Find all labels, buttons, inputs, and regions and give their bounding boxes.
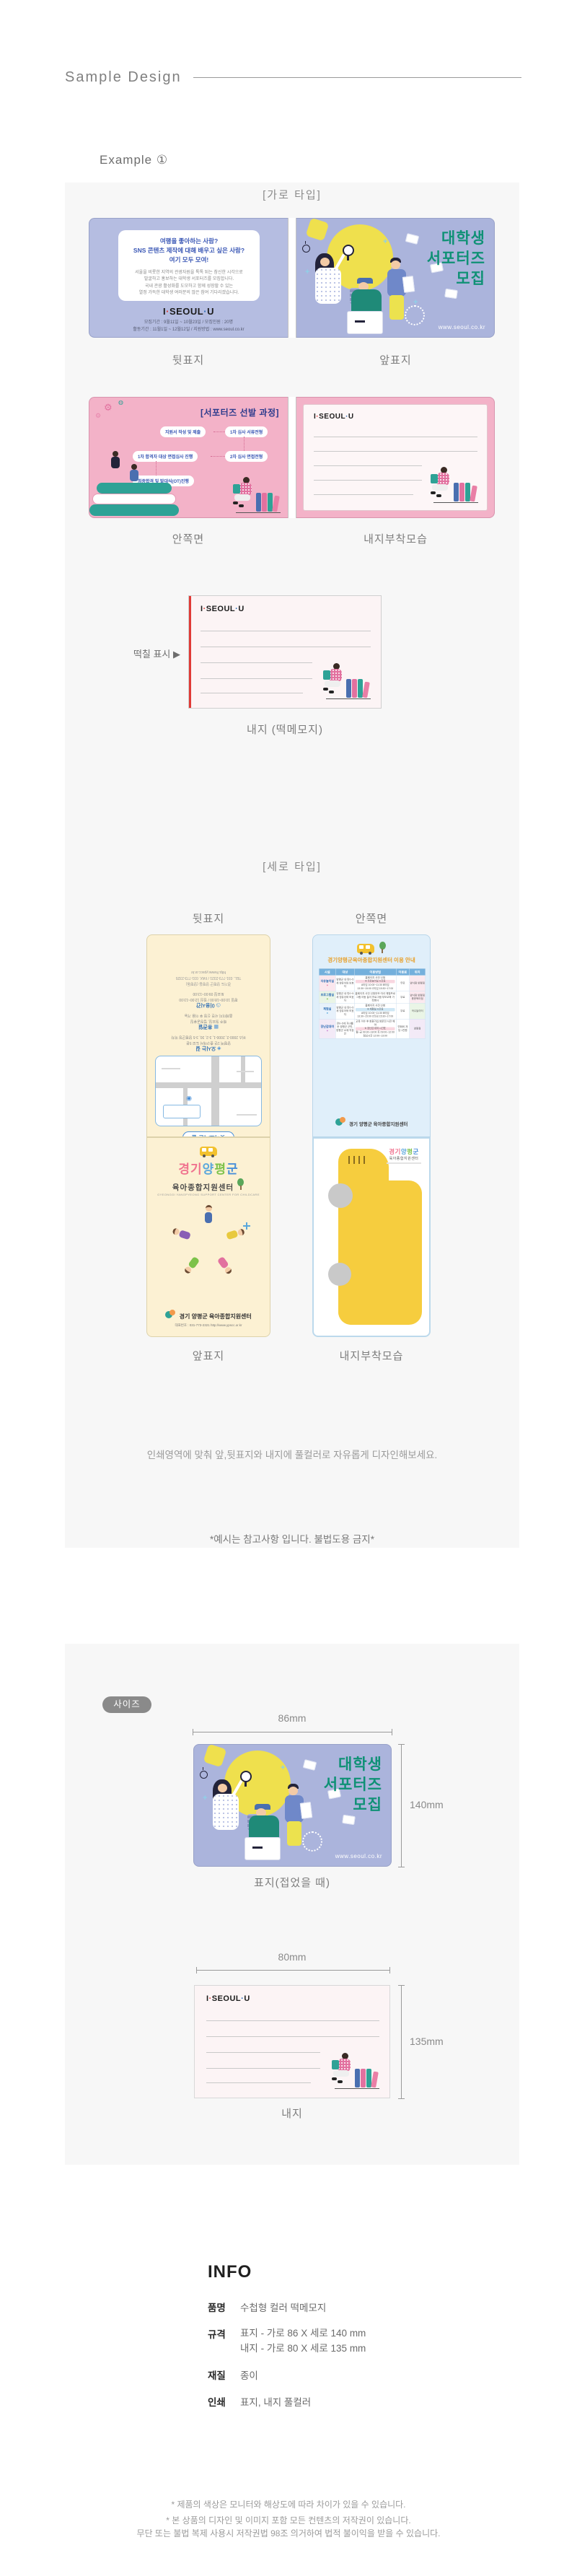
footer-note: 무단 또는 불법 복제 사용시 저작권법 98조 의거하여 법적 불이익을 받을…: [0, 2527, 577, 2539]
page: Sample Design Example ① [가로 타입] 여행을 좋아하는…: [0, 0, 577, 2576]
bus-icon: [357, 944, 374, 953]
caption-v-back: 뒷표지: [146, 911, 270, 926]
caption-cover-folded: 표지(접었을 때): [65, 1875, 519, 1890]
front-title: 대학생 서포터즈 모집: [427, 229, 485, 289]
memo-line: [314, 451, 477, 452]
inner-width-dim: 80mm: [65, 1951, 519, 1963]
mini-person: [130, 464, 138, 481]
measure-line: [196, 1970, 390, 1971]
flow-connector: [213, 431, 225, 432]
caption-memo: 내지 (떡메모지): [188, 722, 382, 737]
memo-line: [201, 678, 312, 679]
back-heading-line: 여기 모두 모여!: [118, 255, 260, 265]
front-cover-card: + + + 대학생 서포터즈 모집 www.seoul.co.kr: [296, 218, 495, 338]
guide-section: ◷ 이용시간 평일 10:00~18:00 / 점심 12:00~13:00 토…: [147, 991, 270, 1009]
calendar-icon: ▦: [213, 1024, 219, 1029]
guide-section: ▦ 휴관일 매주 월요일, 법정공휴일 홈페이지 사전 신청 후 이용 가능: [147, 1012, 270, 1030]
horizontal-type-label: [가로 타입]: [65, 187, 519, 202]
vent-dashes: [348, 1156, 350, 1164]
yangpyeong-subtitle-en: GYEONGGI YANGPYEONG SUPPORT CENTER FOR C…: [147, 1193, 270, 1196]
v-back-cover-card: 찾아오시는 길 ◉ ◈ 오시는 길 양평역 1번 출구에서 도보 5분 버스 2…: [146, 934, 270, 1137]
book-stack: [97, 483, 172, 494]
flow-connector: [211, 456, 225, 457]
v-front-cover-card: 경기양평군 육아종합지원센터 GYEONGGI YANGPYEONG SUPPO…: [146, 1137, 270, 1337]
rotated-back-content: 찾아오시는 길 ◉ ◈ 오시는 길 양평역 1번 출구에서 도보 5분 버스 2…: [147, 944, 270, 1137]
fold-line: [288, 397, 296, 518]
title-divider: [193, 77, 521, 78]
usage-title: 경기양평군육아종합지원센터 이용 안내: [313, 956, 430, 964]
memo-line: [201, 693, 303, 693]
usage-row: 장난감대여● 만0~5세 자녀를 둔 양평군 군민, 양평군 소재 직장인 교육…: [319, 1019, 426, 1038]
yangpyeong-mini-logo: 경기양평군 육아종합지원센터: [384, 1147, 423, 1164]
attached-card: I·SEOUL·U: [296, 397, 495, 518]
magnifier-icon: [240, 1771, 252, 1782]
gear-icon: ⚙: [95, 412, 101, 420]
caption-inside: 안쪽면: [89, 531, 288, 546]
flow-connector: [156, 461, 157, 476]
caption-attached: 내지부착모습: [296, 531, 495, 546]
fold-line: [288, 218, 296, 338]
glue-edge-mark: [189, 596, 191, 708]
caption-back-cover: 뒷표지: [89, 352, 288, 367]
play-icon: ●: [327, 983, 328, 987]
info-label: 품명: [208, 2300, 226, 2314]
design-note: 인쇄영역에 맞춰 앞,뒷표지와 내지에 풀컬러로 자유롭게 디자인해보세요.: [65, 1447, 519, 1461]
reading-person-illustration: [232, 476, 283, 516]
memo-line: [201, 631, 371, 631]
memo-line: [201, 647, 371, 647]
yangpyeong-logo-block: 경기 양평군 육아종합지원센터: [313, 1116, 430, 1129]
map-title-pill: 찾아오시는 길: [182, 1131, 234, 1137]
wheel-shape: [328, 1263, 351, 1286]
memo-line: [314, 494, 413, 495]
info-value: 종이: [240, 2367, 258, 2382]
laptop-shape: [347, 311, 383, 334]
usage-row: 프로그램실● 양평군 내 만0~5세 영유아와 보호자 홈페이지 사전 신청부모…: [319, 991, 426, 1004]
inside-spread: ⚙ ⚙ ◍ [서포터즈 선발 과정] 지원서 작성 및 제출 1차 심사 서류전…: [89, 397, 495, 518]
magnifier-icon: [343, 245, 354, 256]
iseoulu-logo: I·SEOUL·U: [206, 1994, 250, 2003]
memo-line: [314, 480, 422, 481]
memo-sheet: I·SEOUL·U: [303, 404, 488, 511]
reading-person-illustration: [429, 465, 481, 506]
center-logo-icon: [165, 1310, 176, 1320]
gear-icon: ⚙: [104, 402, 113, 413]
info-value: 표지 - 가로 86 X 세로 140 mm 내지 - 가로 80 X 세로 1…: [240, 2326, 366, 2357]
cover-height-dim: 140mm: [410, 1799, 444, 1810]
recruit-meta-line: 모집기간 : 9월11일 ~ 10월23일 / 모집인원 : 20명: [89, 319, 288, 326]
caption-v-attached: 내지부착모습: [312, 1348, 431, 1363]
back-body-line: 국내 관광 활성화를 도모하고 함께 성장할 수 있는: [118, 284, 260, 291]
caption-front-cover: 앞표지: [296, 352, 495, 367]
info-value: 표지, 내지 풀컬러: [240, 2394, 311, 2409]
paper-shape: [444, 289, 458, 299]
caption-v-inside: 안쪽면: [312, 911, 431, 926]
back-body-line: 열정 가득한 대학생 여러분의 많은 참여 기다리겠습니다.: [118, 290, 260, 297]
puzzle-shape: [306, 218, 330, 241]
plus-accent: +: [383, 237, 387, 246]
tree-icon: [237, 1178, 245, 1190]
paper-shape: [405, 233, 419, 245]
logo-contact: 대표번호 : 031-773-2321 http://www.ypscc.or.…: [147, 1323, 270, 1328]
cover-width-dim: 86mm: [65, 1712, 519, 1724]
size-memo-card: I·SEOUL·U: [194, 1985, 390, 2098]
star-accent: [243, 1222, 250, 1230]
tree-icon: [379, 942, 387, 953]
contact-block: 경기도 양평군 양평읍 (양평동) TEL. 031-773-2321 / FA…: [147, 969, 270, 986]
usage-row: 자유놀이실● 양평군 내 만0~5세 영유아와 보호자 홈페이지 사전 신청※ …: [319, 976, 426, 991]
toy-icon: ●: [327, 1029, 328, 1033]
measure-line: [193, 1732, 392, 1732]
recruit-meta-line: 활동기간 : 11월1일 ~ 12월12일 / 지원방법 : www.seoul…: [89, 326, 288, 333]
clock-icon: ◷: [216, 1002, 221, 1007]
wheel-shape: [328, 1183, 353, 1208]
front-title: 대학생 서포터즈 모집: [324, 1755, 382, 1815]
process-step: 지원서 작성 및 제출: [160, 426, 206, 437]
yangpyeong-subtitle: 육아종합지원센터: [147, 1178, 270, 1193]
size-badge: 사이즈: [102, 1696, 151, 1713]
size-cover-card: + + 대학생 서포터즈 모집 www.seoul.co.kr: [193, 1744, 392, 1867]
inner-height-dim: 135mm: [410, 2036, 444, 2047]
cover-spread: 여행을 좋아하는 사람? SNS 콘텐츠 제작에 대해 배우고 싶은 사람? 여…: [89, 218, 495, 338]
process-step: 1차 심사 서류전형: [225, 426, 268, 437]
flow-connector: [244, 437, 245, 451]
reading-person-illustration: [330, 2051, 382, 2092]
back-heading-line: 여행을 좋아하는 사람?: [118, 237, 260, 246]
bulb-doodle-icon: [200, 1771, 208, 1779]
footer-note: * 제품의 색상은 모니터와 해상도에 따라 차이가 있을 수 있습니다.: [0, 2498, 577, 2510]
memo-sheet-card: I·SEOUL·U: [188, 595, 382, 709]
memo-line: [314, 437, 477, 437]
bulb-doodle-icon: [302, 245, 310, 253]
center-logo-icon: [335, 1117, 346, 1128]
process-step: 1차 합격자 대상 면접심사 진행: [133, 451, 198, 462]
bus-route-icon: ◈: [217, 1046, 221, 1051]
info-label: 인쇄: [208, 2394, 226, 2409]
map-label-box: [163, 1105, 201, 1118]
inside-card: ⚙ ⚙ ◍ [서포터즈 선발 과정] 지원서 작성 및 제출 1차 심사 서류전…: [89, 397, 288, 518]
info-label: 재질: [208, 2367, 226, 2382]
caption-inner-sheet: 내지: [65, 2106, 519, 2121]
yangpyeong-title: 경기양평군: [147, 1159, 270, 1177]
measure-line: [401, 1985, 402, 2098]
iseoulu-logo: I·SEOUL·U: [201, 605, 245, 613]
back-heading-line: SNS 콘텐츠 제작에 대해 배우고 싶은 사람?: [118, 246, 260, 255]
footer-note: * 본 상품의 디자인 및 이미지 포함 모든 컨텐츠의 저작권이 있습니다.: [0, 2514, 577, 2526]
program-icon: ●: [327, 997, 328, 1001]
usage-row: 체험실● 양평군 내 만0~5세 영유아와 보호자 홈페이지 사전 신청※ 체험…: [319, 1003, 426, 1019]
dotted-circle: [405, 305, 425, 325]
front-url: www.seoul.co.kr: [335, 1853, 382, 1859]
vertical-type-label: [세로 타입]: [65, 859, 519, 874]
iseoulu-logo: I·SEOUL·U: [89, 306, 288, 317]
v-inside-card: 경기양평군육아종합지원센터 이용 안내 시설 대상 이용방법 이용료 위치 자유…: [312, 934, 431, 1137]
page-title: Sample Design: [65, 69, 182, 86]
info-label: 규격: [208, 2326, 226, 2341]
back-body-line: 발굴하고 홍보하는 대학생 서포터즈를 모집합니다.: [118, 276, 260, 284]
front-url: www.seoul.co.kr: [439, 324, 485, 330]
back-body-line: 서울을 비롯한 지역의 관광자원을 톡톡 튀는 참신한 시각으로: [118, 270, 260, 277]
process-step: 2차 심사 면접전형: [225, 451, 268, 462]
back-cover-card: 여행을 좋아하는 사람? SNS 콘텐츠 제작에 대해 배우고 싶은 사람? 여…: [89, 218, 288, 338]
memo-line: [201, 662, 312, 663]
warning-note: *예시는 참고사항 입니다. 불법도용 금지*: [65, 1531, 519, 1546]
yangpyeong-logo-block: 경기 양평군 육아종합지원센터 대표번호 : 031-773-2321 http…: [147, 1309, 270, 1328]
mini-person: [111, 451, 120, 468]
info-heading: INFO: [208, 2262, 252, 2282]
usage-table-wrap: 시설 대상 이용방법 이용료 위치 자유놀이실● 양평군 내 만0~5세 영유아…: [319, 968, 426, 1038]
example-label: Example ①: [100, 153, 168, 167]
map-illustration: ◉: [155, 1056, 262, 1126]
memo-line: [314, 465, 422, 466]
v-attached-card: 경기양평군 육아종합지원센터: [312, 1137, 431, 1337]
iseoulu-logo: I·SEOUL·U: [314, 413, 354, 421]
info-value: 수첩형 컬러 떡메모지: [240, 2300, 326, 2314]
planet-icon: ◍: [118, 399, 123, 406]
footprints-icon: ●: [327, 1011, 328, 1015]
children-circle-illustration: [165, 1202, 252, 1283]
reading-person-illustration: [322, 662, 374, 702]
caption-v-front: 앞표지: [146, 1348, 270, 1363]
plus-accent: +: [305, 268, 309, 276]
process-title: [서포터즈 선발 과정]: [201, 406, 279, 419]
guide-section: ◈ 오시는 길 양평역 1번 출구에서 도보 5분 버스 2000-2, 200…: [147, 1034, 270, 1052]
usage-table: 시설 대상 이용방법 이용료 위치 자유놀이실● 양평군 내 만0~5세 영유아…: [319, 968, 426, 1038]
bus-icon: [200, 1147, 217, 1156]
glue-mark-label: 떡칠 표시 ▶: [101, 647, 180, 660]
measure-line: [401, 1744, 402, 1867]
map-pin-icon: ◉: [186, 1095, 192, 1103]
back-cover-textbox: 여행을 좋아하는 사람? SNS 콘텐츠 제작에 대해 배우고 싶은 사람? 여…: [118, 230, 260, 301]
